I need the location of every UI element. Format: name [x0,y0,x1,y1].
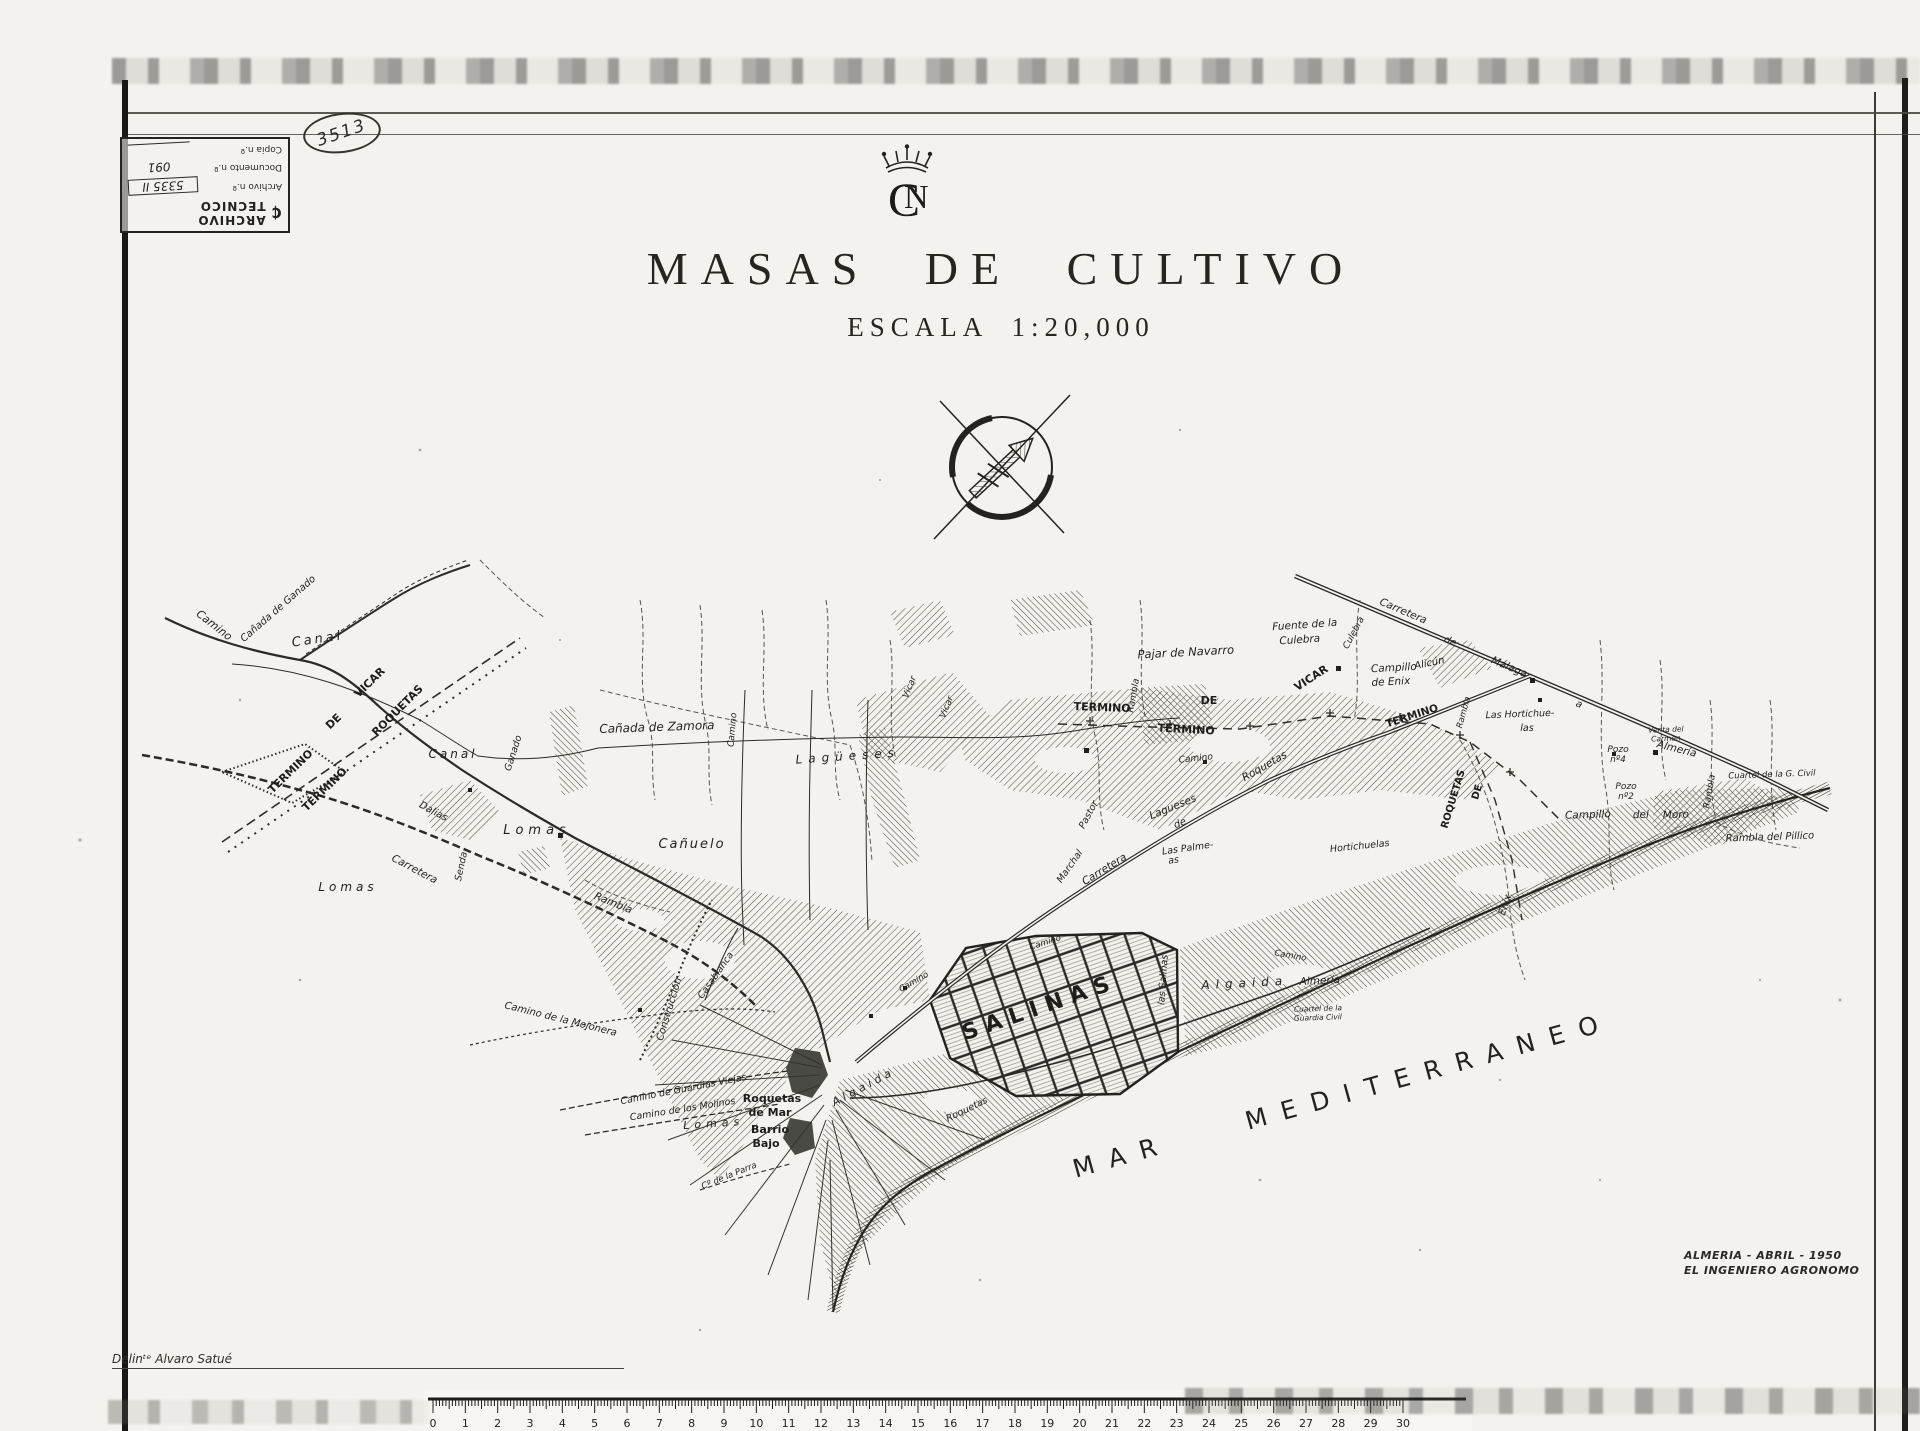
map-label: Hortichuelas [1329,838,1390,855]
north-arrow-icon [965,430,1041,503]
map-canvas: MAR MEDITERRANEO CaminoCañada de GanadoC… [0,0,1920,1431]
map-label: Málaga [1489,654,1529,680]
credit-place-date: ALMERIA - ABRIL - 1950 [1684,1248,1859,1263]
map-label: a [1574,698,1584,711]
ruler-number: 0 [430,1417,437,1430]
ruler-number: 24 [1202,1417,1216,1430]
ruler-number: 17 [976,1417,990,1430]
ruler-number: 13 [846,1417,860,1430]
ruler-number: 2 [494,1417,501,1430]
map-label: Pozo [1615,782,1637,792]
map-label: nº4 [1610,755,1626,765]
ruler-number: 19 [1040,1417,1054,1430]
ruler-number: 22 [1137,1417,1151,1430]
map-label: Barrio [751,1123,789,1136]
north-compass [934,395,1070,539]
map-label: Almería [1298,974,1340,988]
map-label: VICAR [1292,662,1331,694]
map-label: Campillo [1565,808,1611,822]
ruler-number: 7 [656,1417,663,1430]
ruler-number: 20 [1073,1417,1087,1430]
map-label: Moro [1663,809,1690,822]
credit-block: ALMERIA - ABRIL - 1950 EL INGENIERO AGRO… [1684,1248,1859,1278]
credit-signature-title: EL INGENIERO AGRONOMO [1684,1263,1859,1278]
map-label: Cuartel de la G. Civil [1728,768,1816,781]
map-label: as [1168,854,1180,866]
map-label: Carretera [389,852,439,886]
map-label: Guardia Civil [1294,1012,1343,1023]
map-label: Culebra [1342,615,1367,651]
map-label: Cañuelo [658,837,725,852]
ruler-number: 18 [1008,1417,1022,1430]
scanned-map-sheet: ₵ ARCHIVO TECNICO Archivo n.º 5335 II Do… [0,0,1920,1431]
ruler-number: 4 [559,1417,566,1430]
map-label: del [1633,809,1650,822]
ruler-number: 26 [1267,1417,1281,1430]
map-label: Carretera [1080,851,1129,888]
ruler-number: 3 [526,1417,533,1430]
map-label: TERMINO [1073,700,1131,715]
map-label: Carmen [1651,733,1681,743]
map-label: de Enix [1371,675,1411,689]
map-label: Las Hortichue- [1485,708,1555,721]
scan-artifact-bottom-right [1185,1388,1920,1414]
map-label: DE [1201,694,1218,707]
map-label: Camino [727,712,740,748]
ruler-number: 9 [720,1417,727,1430]
ruler-number: 8 [688,1417,695,1430]
map-label: Pozo [1607,745,1629,755]
ruler-number: 15 [911,1417,925,1430]
ruler-number: 1 [462,1417,469,1430]
map-label: Lomas [318,880,377,894]
map-label: Bajo [752,1137,780,1150]
map-label: DE [323,711,344,732]
ruler-number: 21 [1105,1417,1119,1430]
map-label: Rambla [1455,696,1473,730]
map-label: las [1520,723,1533,734]
delineator-signature: Delinᵗᵉ Alvaro Satué [112,1352,624,1369]
map-label: Fuente de la [1272,617,1338,634]
map-label: VICAR [352,664,389,700]
ruler-number: 5 [591,1417,598,1430]
map-label: Lomas [503,823,571,838]
ruler-number: 29 [1364,1417,1378,1430]
map-label: nº2 [1618,792,1634,802]
ruler-number: 11 [782,1417,796,1430]
map-label: Senda [453,851,470,883]
map-label: ROQUETAS [369,682,425,738]
ruler-number: 10 [749,1417,763,1430]
ruler-number: 28 [1331,1417,1345,1430]
map-label: Canal [428,747,477,761]
ruler-number: 27 [1299,1417,1313,1430]
map-label: TERMINO [266,747,316,796]
ruler-number: 12 [814,1417,828,1430]
map-label: Pastor [1077,798,1101,831]
map-label: Roquetas [743,1092,802,1105]
scan-artifact-bottom-left [108,1400,430,1424]
map-label: Camino de la Mojonera [503,1000,618,1039]
map-label: Rambla del Pillico [1726,830,1815,844]
ruler-number: 25 [1234,1417,1248,1430]
map-label: Ganado [503,734,525,773]
ruler-number: 6 [623,1417,630,1430]
map-label: Cañada de Zamora [599,718,715,736]
ruler-number: 30 [1396,1417,1410,1430]
ruler-number: 14 [879,1417,893,1430]
map-label: Pajar de Navarro [1137,642,1234,661]
map-label: de Mar [749,1106,793,1119]
ruler-number: 16 [943,1417,957,1430]
map-label: Campillo [1371,661,1417,675]
ruler-number: 23 [1170,1417,1184,1430]
map-label: Culebra [1279,633,1321,648]
